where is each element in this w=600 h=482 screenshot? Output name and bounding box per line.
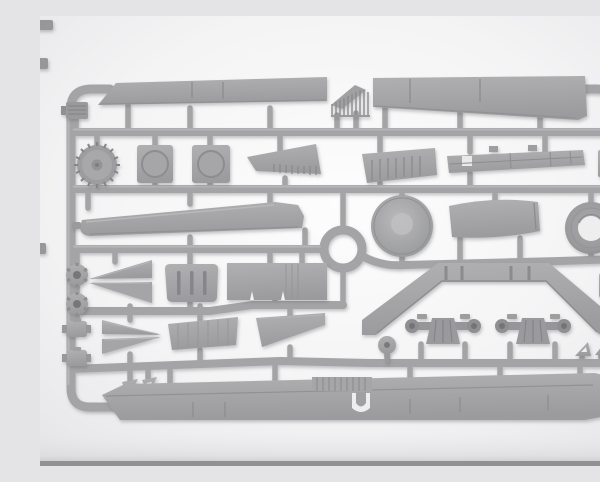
curved-panel [449,200,540,238]
hatch-plate-2 [192,145,230,183]
sprue-photo [40,16,600,466]
floor-strip [40,461,600,466]
wheel-disc [371,195,433,257]
slotted-hatch [165,264,218,302]
hatch-plate-1 [137,145,173,183]
floor-panel [227,263,327,300]
backdrop-falloff [40,431,600,466]
sprue-photo-canvas [40,16,600,466]
